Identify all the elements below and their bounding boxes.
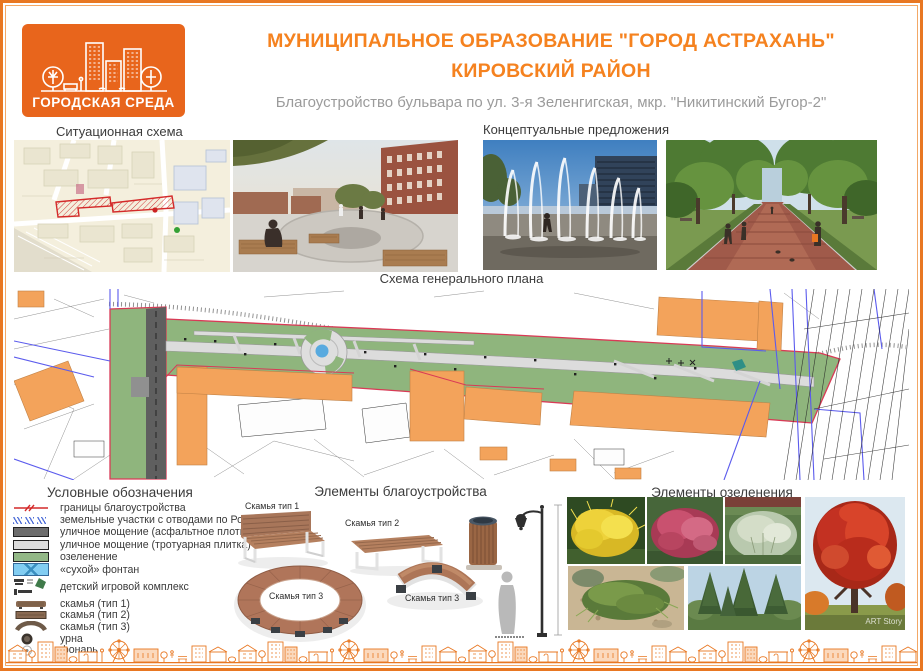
- photo-watermark: ART Story: [865, 617, 902, 626]
- masterplan-title: Схема генерального плана: [0, 271, 923, 286]
- dry-fountain-swatch: [13, 563, 50, 576]
- legend-item: скамья (тип 1): [13, 598, 235, 610]
- poster-board: ГОРОДСКАЯ СРЕДА МУНИЦИПАЛЬНОЕ ОБРАЗОВАНИ…: [0, 0, 923, 671]
- bench-type1-label: Скамья тип 1: [245, 501, 299, 511]
- gorodskaya-sreda-logo: ГОРОДСКАЯ СРЕДА: [22, 24, 185, 117]
- street-furniture-drawing: [233, 497, 568, 648]
- situational-scheme-title: Ситуационная схема: [56, 124, 183, 139]
- photo-plaza-render: [233, 140, 458, 272]
- legend-item: уличное мощение (тротуарная плитка): [13, 539, 235, 551]
- bench-type3-ring-label: Скамья тип 3: [269, 591, 323, 601]
- improvement-elements: Скамья тип 1 Скамья тип 2 Скамья тип 3 С…: [233, 497, 568, 648]
- city-skyline-footer: [6, 637, 917, 665]
- photo-conifers: [688, 566, 801, 630]
- bench2-icon: [13, 610, 50, 620]
- bench1-icon: [13, 599, 50, 609]
- header: МУНИЦИПАЛЬНОЕ ОБРАЗОВАНИЕ "ГОРОД АСТРАХА…: [195, 30, 907, 111]
- asphalt-swatch: [13, 527, 50, 537]
- bench-type3-arc-label: Скамья тип 3: [405, 593, 459, 603]
- logo-title: ГОРОДСКАЯ СРЕДА: [32, 95, 175, 110]
- page-subtitle: Благоустройство бульвара по ул. 3-я Зеле…: [195, 94, 907, 111]
- masterplan-drawing: [14, 289, 909, 480]
- legend-item: границы благоустройства: [13, 502, 235, 514]
- legend-item: скамья (тип 2): [13, 610, 235, 622]
- page-title-line1: МУНИЦИПАЛЬНОЕ ОБРАЗОВАНИЕ "ГОРОД АСТРАХА…: [195, 30, 907, 53]
- legend-item: «сухой» фонтан: [13, 563, 235, 577]
- photo-silver-shrub: [725, 497, 801, 564]
- paving-tile-swatch: [13, 540, 50, 550]
- boundary-line-icon: [13, 503, 50, 513]
- legend-item: уличное мощение (асфальтное плотно): [13, 526, 235, 538]
- photo-juniper: [568, 566, 684, 630]
- photo-boulevard: [666, 140, 877, 270]
- photo-yellow-shrub: [567, 497, 645, 564]
- photo-fountain: [483, 140, 657, 270]
- legend: границы благоустройства земельные участк…: [13, 502, 235, 656]
- photo-pink-shrub: [647, 497, 723, 564]
- legend-item: земельные участки с отводами по Росреест…: [13, 514, 235, 526]
- situational-map: [14, 140, 230, 272]
- legend-item: озеленение: [13, 551, 235, 563]
- conceptual-proposals-title: Концептуальные предложения: [483, 122, 669, 137]
- city-skyline-icon: [39, 37, 169, 95]
- page-title-line2: КИРОВСКИЙ РАЙОН: [195, 60, 907, 83]
- parcel-hatch-icon: [13, 517, 50, 524]
- legend-title: Условные обозначения: [47, 485, 193, 500]
- greenery-elements: ART Story: [567, 496, 910, 632]
- playground-icon: [13, 577, 50, 597]
- bench3-icon: [13, 621, 50, 632]
- legend-item: детский игровой комплекс: [13, 577, 235, 598]
- greenery-swatch: [13, 552, 50, 562]
- photo-red-tree: ART Story: [805, 497, 905, 630]
- bench-type2-label: Скамья тип 2: [345, 518, 399, 528]
- legend-item: скамья (тип 3): [13, 621, 235, 633]
